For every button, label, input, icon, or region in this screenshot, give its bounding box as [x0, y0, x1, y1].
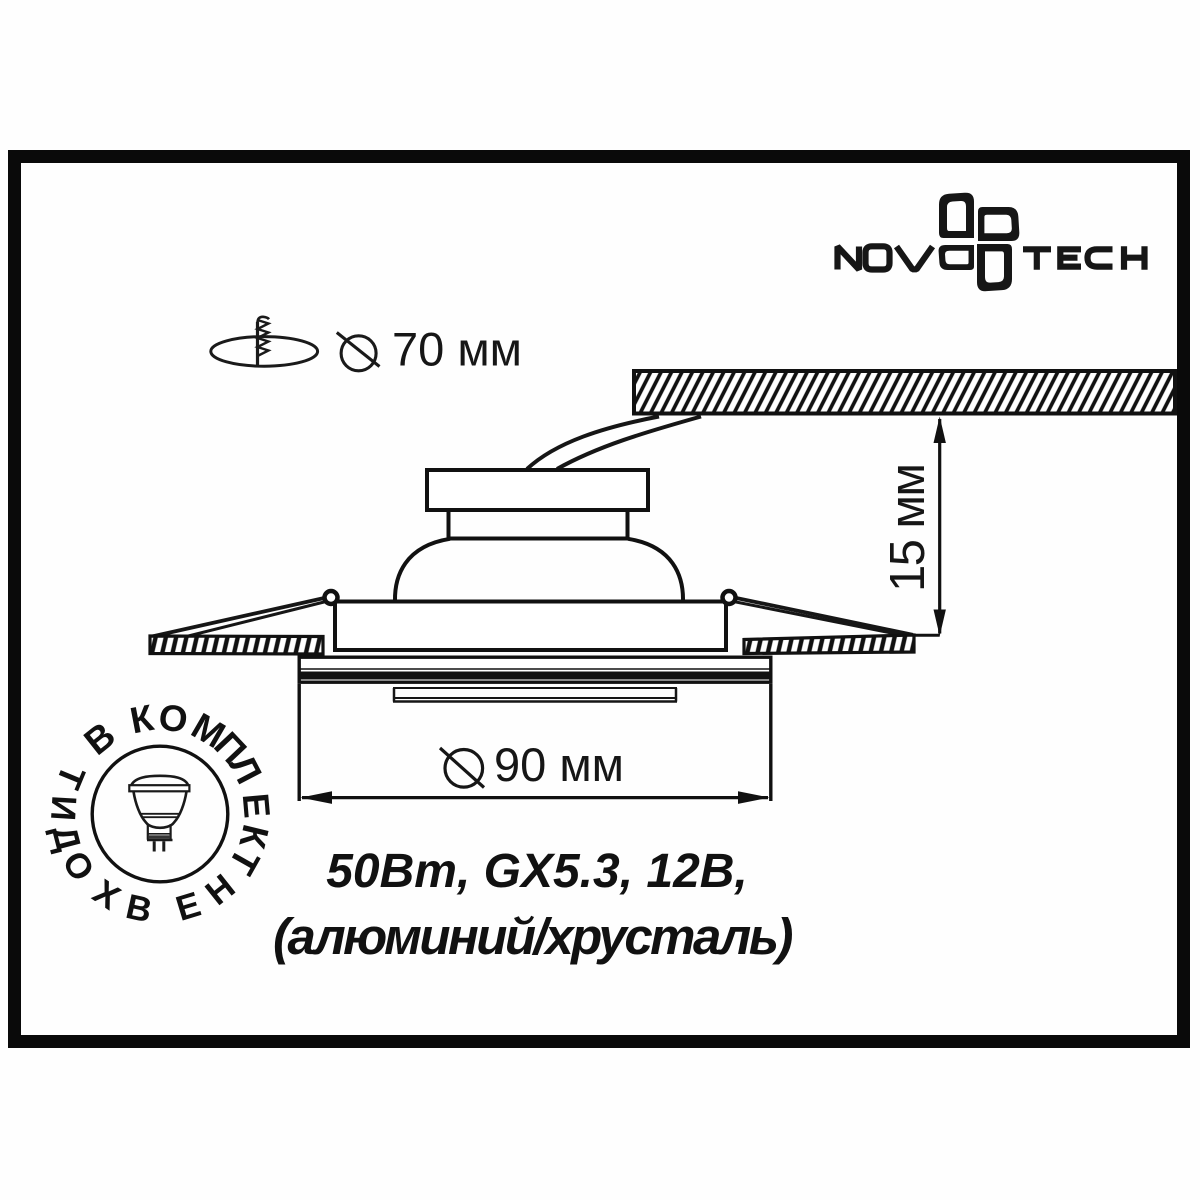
svg-text:(алюминий/хрусmаль): (алюминий/хрусmаль)	[273, 908, 793, 965]
svg-text:50Bm, GX5.3, 12B,: 50Bm, GX5.3, 12B,	[326, 845, 748, 898]
svg-text:И: И	[43, 794, 83, 821]
svg-text:15 мм: 15 мм	[881, 465, 935, 593]
svg-text:Е: Е	[235, 792, 278, 820]
svg-text:90 мм: 90 мм	[494, 738, 624, 791]
svg-text:О: О	[156, 696, 190, 741]
svg-text:70 мм: 70 мм	[392, 323, 522, 376]
